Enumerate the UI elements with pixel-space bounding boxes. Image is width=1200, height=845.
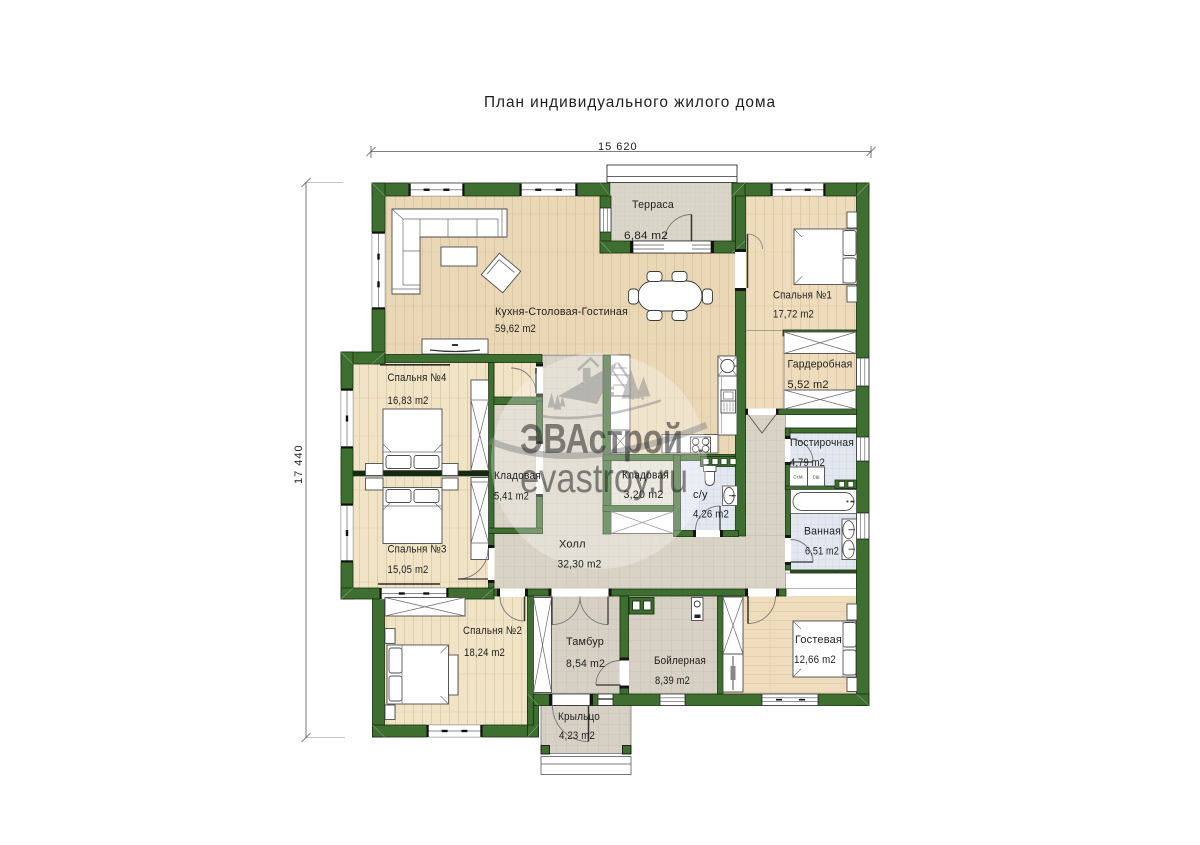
svg-text:16,83 m2: 16,83 m2: [388, 395, 429, 407]
svg-text:17 440: 17 440: [293, 444, 305, 484]
svg-text:15 620: 15 620: [598, 141, 638, 153]
svg-text:Ванная: Ванная: [804, 526, 841, 538]
svg-text:4,79 m2: 4,79 m2: [790, 457, 825, 469]
svg-text:8,54 m2: 8,54 m2: [566, 658, 605, 670]
svg-text:Гостевая: Гостевая: [795, 634, 842, 646]
svg-text:5,41 m2: 5,41 m2: [494, 491, 529, 503]
svg-text:Ст.М.: Ст.М.: [793, 475, 803, 480]
svg-text:4,26 m2: 4,26 m2: [693, 509, 729, 521]
svg-text:Тамбур: Тамбур: [566, 636, 604, 648]
svg-text:Кухня-Столовая-Гостиная: Кухня-Столовая-Гостиная: [495, 306, 628, 318]
svg-text:Гардеробная: Гардеробная: [788, 359, 853, 371]
svg-text:32,30 m2: 32,30 m2: [558, 559, 602, 571]
svg-text:12,66 m2: 12,66 m2: [794, 654, 836, 666]
svg-text:15,05 m2: 15,05 m2: [388, 564, 429, 576]
svg-text:План индивидуального жилого до: План индивидуального жилого дома: [484, 94, 776, 111]
svg-text:6,51 m2: 6,51 m2: [805, 546, 839, 558]
svg-text:Постирочная: Постирочная: [790, 437, 854, 449]
svg-text:3,20 m2: 3,20 m2: [624, 489, 664, 501]
svg-text:Спальня №4: Спальня №4: [388, 372, 447, 384]
svg-text:59,62 m2: 59,62 m2: [495, 323, 536, 335]
svg-text:4,23 m2: 4,23 m2: [559, 730, 595, 742]
svg-text:Кладовая: Кладовая: [622, 470, 669, 482]
svg-text:Кладовая: Кладовая: [494, 470, 541, 482]
svg-text:Бойлерная: Бойлерная: [654, 655, 706, 667]
svg-text:8,39 m2: 8,39 m2: [655, 675, 690, 687]
svg-text:6,84 m2: 6,84 m2: [624, 230, 668, 242]
svg-text:Крыльцо: Крыльцо: [558, 711, 600, 723]
svg-text:Терраса: Терраса: [632, 199, 675, 211]
svg-text:Холл: Холл: [559, 539, 586, 551]
svg-text:18,24 m2: 18,24 m2: [464, 647, 505, 659]
svg-text:с/у: с/у: [693, 489, 708, 501]
svg-text:Спальня №3: Спальня №3: [388, 544, 447, 556]
svg-text:СШ: СШ: [813, 475, 820, 480]
svg-text:5,52 m2: 5,52 m2: [788, 379, 829, 391]
svg-text:17,72 m2: 17,72 m2: [773, 309, 814, 321]
svg-text:Спальня №1: Спальня №1: [773, 290, 832, 302]
svg-text:Спальня №2: Спальня №2: [463, 625, 522, 637]
